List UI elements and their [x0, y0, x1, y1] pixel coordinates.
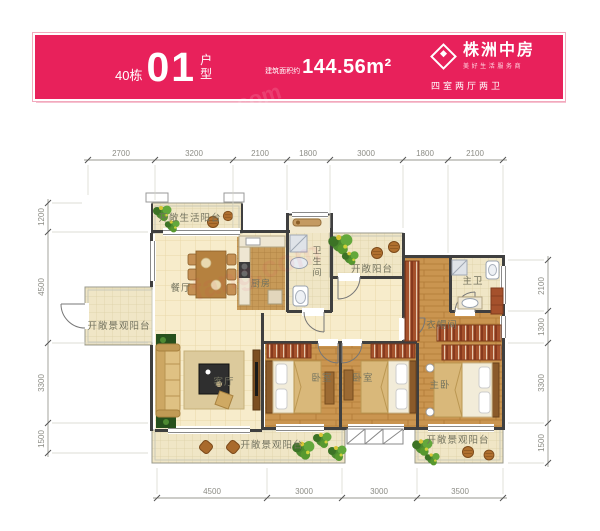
ac-platform: [347, 429, 403, 444]
dim-right-4: 1500: [537, 434, 546, 452]
label-bathroom: 卫生间: [311, 246, 324, 279]
floorplan-poster: 2700 3200 2100 1800 3000 1800 2100 1200 …: [0, 0, 600, 531]
unit-title: 40栋 01 户型: [115, 47, 213, 88]
label-view-balcony-right: 开敞景观阳台: [426, 432, 489, 446]
dim-top-6: 1800: [416, 149, 434, 158]
dim-top-1: 2700: [112, 149, 130, 158]
dim-right-1: 2100: [537, 277, 546, 295]
dim-left-1: 1200: [37, 208, 46, 226]
label-living: 客厅: [213, 374, 234, 388]
dim-bottom-3: 3000: [370, 487, 388, 496]
dim-left-2: 4500: [37, 278, 46, 296]
layout-badge: 四室两厅两卫: [431, 79, 503, 92]
dim-bottom-4: 3500: [451, 487, 469, 496]
label-life-balcony: 开敞生活阳台: [158, 210, 221, 224]
label-master-bedroom: 主卧: [429, 377, 450, 391]
label-kitchen: 厨房: [251, 277, 271, 290]
area-value: 144.56m²: [302, 56, 392, 79]
dim-bottom-1: 4500: [203, 487, 221, 496]
brand-logo-icon: [430, 43, 457, 70]
area-prefix: 建筑面积约: [265, 66, 300, 76]
upper-ac-boxes: [146, 193, 244, 202]
dim-right-2: 1300: [537, 318, 546, 336]
brand-slogan: 美好生活服务商: [463, 61, 535, 70]
label-view-balcony-left: 开敞景观阳台: [87, 318, 150, 332]
dim-top-5: 3000: [357, 149, 375, 158]
dim-left-4: 1500: [37, 430, 46, 448]
dim-top-7: 2100: [466, 149, 484, 158]
dim-left-3: 3300: [37, 374, 46, 392]
dim-top-3: 2100: [251, 149, 269, 158]
dim-bottom-2: 3000: [295, 487, 313, 496]
area-info: 建筑面积约 144.56m²: [265, 56, 392, 79]
label-master-bath: 主卫: [462, 273, 483, 287]
brand-block: 株洲中房 美好生活服务商 四室两厅两卫: [431, 42, 535, 93]
label-bedroom2: 卧室: [352, 370, 373, 384]
header-banner: 40栋 01 户型 建筑面积约 144.56m² 株洲中房 美好生活服务商 四室…: [35, 35, 563, 99]
label-bedroom1: 卧室: [311, 370, 332, 384]
brand-name: 株洲中房: [463, 42, 535, 60]
unit-number: 01: [146, 47, 196, 88]
label-open-balcony: 开敞阳台: [351, 261, 393, 275]
label-dining: 餐厅: [170, 280, 191, 294]
building-number: 40栋: [115, 65, 142, 84]
dim-top-4: 1800: [299, 149, 317, 158]
dim-right-3: 3300: [537, 374, 546, 392]
unit-type-suffix: 户型: [200, 54, 213, 82]
dim-top-2: 3200: [185, 149, 203, 158]
label-closet: 衣帽间: [426, 317, 458, 331]
label-view-balcony-bottom: 开敞景观阳台: [240, 437, 303, 451]
